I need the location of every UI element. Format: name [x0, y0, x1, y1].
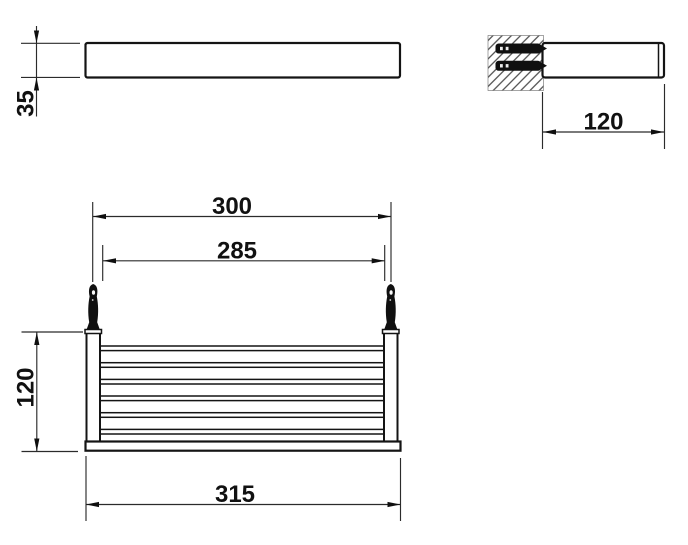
arrowhead-left [543, 129, 556, 134]
shelf-bar [100, 379, 385, 384]
arrowhead-right [651, 129, 664, 134]
dimension-label-thickness: 35 [13, 90, 40, 117]
shelf-bar [100, 346, 385, 351]
shelf-bars [100, 346, 385, 434]
arrowhead-left [103, 258, 116, 263]
dimension-label-overall-width: 315 [215, 481, 255, 508]
right-post [384, 333, 398, 442]
left-hook [87, 284, 100, 330]
left-post-cap [85, 330, 102, 334]
side-view-figure: 35 [13, 26, 401, 117]
mounting-screw [496, 44, 548, 54]
right-post-cap [383, 330, 400, 334]
arrowhead-right [372, 258, 385, 263]
drawing-svg: 35 120 [0, 0, 688, 545]
dimension-height: 120 [13, 332, 84, 452]
shelf-rail-side [86, 43, 401, 78]
arrowhead-down [34, 439, 39, 452]
shelf-bar [100, 396, 385, 401]
dimension-thickness: 35 [13, 26, 81, 117]
dimension-label-hole-spacing: 300 [212, 193, 252, 220]
dimension-label-inner-width: 285 [217, 238, 257, 265]
shelf-bar [100, 363, 385, 368]
arrowhead-right [378, 214, 391, 219]
section-view-figure: 120 [488, 36, 665, 150]
left-post [87, 333, 101, 442]
dimension-overall-width: 315 [86, 456, 401, 521]
shelf-rail-section [543, 43, 665, 78]
arrowhead-up [34, 332, 39, 345]
arrowhead-up [34, 77, 39, 90]
dimension-label-height: 120 [13, 367, 40, 407]
bottom-rail [86, 442, 401, 451]
shelf-bar [100, 413, 385, 418]
technical-drawing-canvas: 35 120 [0, 0, 688, 545]
shelf-bar [100, 429, 385, 434]
right-hook [384, 284, 397, 330]
arrowhead-down [34, 31, 39, 44]
shelf-assembly [85, 284, 401, 451]
dimension-depth: 120 [543, 84, 665, 149]
arrowhead-right [388, 502, 401, 507]
dimension-label-depth: 120 [583, 109, 623, 136]
mounting-screw [496, 61, 548, 71]
arrowhead-left [93, 214, 106, 219]
arrowhead-left [86, 502, 99, 507]
dimension-inner-width: 285 [103, 238, 385, 282]
front-view-figure: 300 285 [13, 193, 401, 521]
